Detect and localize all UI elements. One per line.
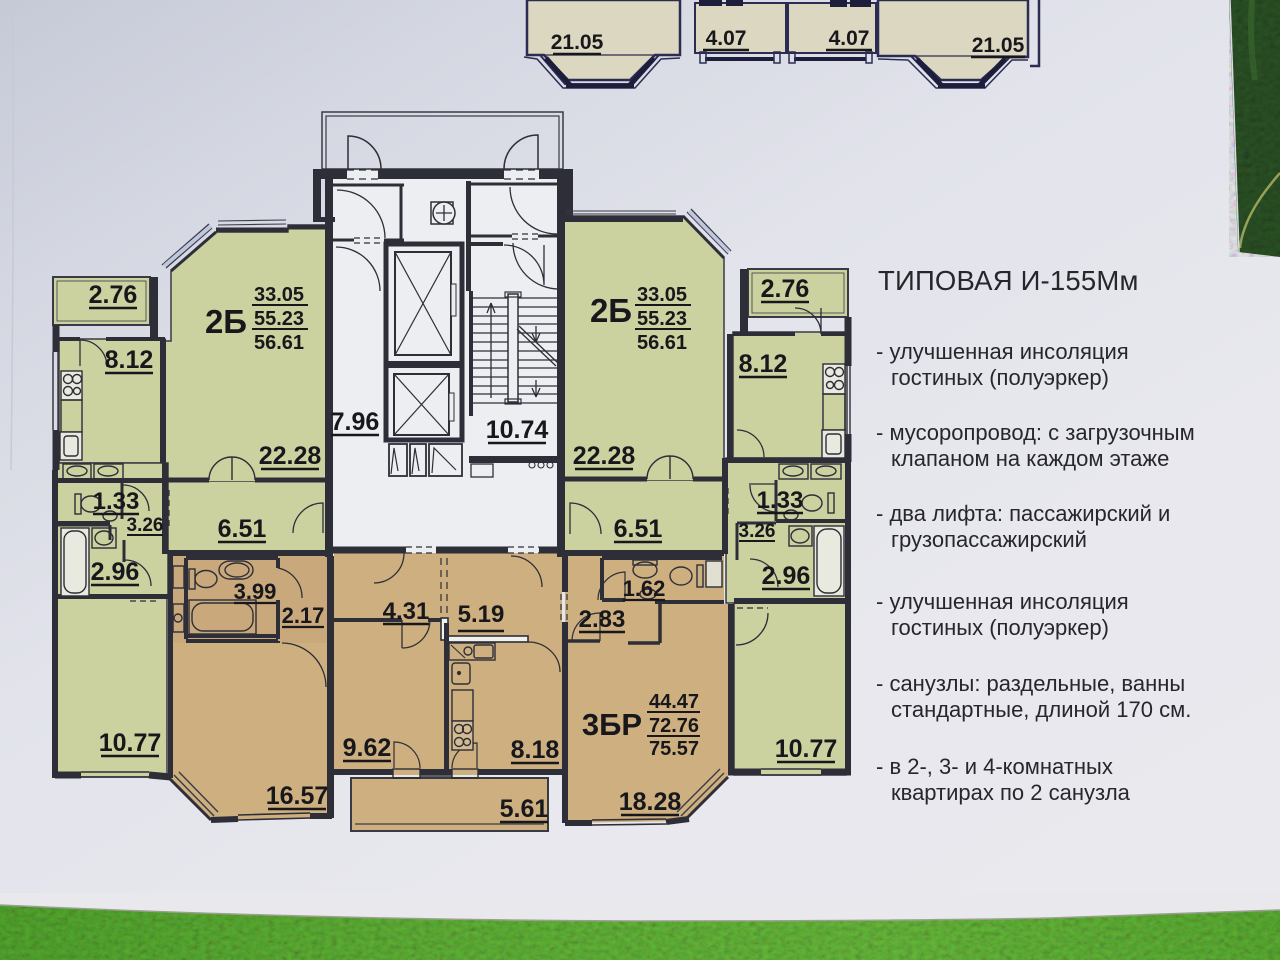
- svg-text:56.61: 56.61: [637, 332, 687, 354]
- svg-text:2.76: 2.76: [761, 275, 810, 303]
- svg-text:8.12: 8.12: [105, 346, 154, 374]
- svg-text:2.96: 2.96: [762, 562, 811, 590]
- svg-text:2Б: 2Б: [590, 292, 632, 329]
- svg-text:гостиных (полуэркер): гостиных (полуэркер): [891, 615, 1109, 640]
- svg-text:10.77: 10.77: [99, 729, 162, 757]
- svg-text:6.51: 6.51: [614, 515, 663, 543]
- svg-text:- два лифта: пассажирский и: - два лифта: пассажирский и: [876, 501, 1170, 526]
- svg-text:3БР: 3БР: [582, 707, 642, 742]
- svg-text:3.26: 3.26: [739, 521, 776, 542]
- svg-text:2.76: 2.76: [89, 281, 138, 309]
- svg-text:1.33: 1.33: [93, 488, 140, 515]
- svg-text:22.28: 22.28: [573, 442, 636, 470]
- svg-text:- мусоропровод: с загрузочным: - мусоропровод: с загрузочным: [876, 420, 1195, 445]
- svg-text:- санузлы: раздельные, ванны: - санузлы: раздельные, ванны: [876, 671, 1185, 696]
- svg-text:9.62: 9.62: [343, 734, 392, 762]
- svg-text:33.05: 33.05: [637, 284, 687, 306]
- svg-text:6.51: 6.51: [218, 515, 267, 543]
- svg-text:- улучшенная инсоляция: - улучшенная инсоляция: [876, 339, 1129, 364]
- svg-text:4.07: 4.07: [706, 27, 747, 50]
- svg-text:75.57: 75.57: [649, 738, 699, 760]
- svg-text:стандартные, длиной 170 см.: стандартные, длиной 170 см.: [891, 697, 1191, 722]
- svg-text:16.57: 16.57: [266, 782, 329, 810]
- svg-text:5.19: 5.19: [458, 601, 505, 628]
- svg-text:56.61: 56.61: [254, 332, 304, 354]
- svg-text:2.83: 2.83: [579, 606, 626, 633]
- svg-text:44.47: 44.47: [649, 691, 699, 713]
- svg-text:18.28: 18.28: [619, 788, 682, 816]
- svg-text:гостиных (полуэркер): гостиных (полуэркер): [891, 365, 1109, 390]
- svg-text:клапаном на каждом этаже: клапаном на каждом этаже: [891, 446, 1169, 471]
- svg-text:10.74: 10.74: [486, 416, 549, 444]
- svg-text:21.05: 21.05: [972, 34, 1025, 57]
- svg-text:2.96: 2.96: [91, 558, 140, 586]
- svg-text:- улучшенная инсоляция: - улучшенная инсоляция: [876, 589, 1129, 614]
- svg-text:55.23: 55.23: [637, 308, 687, 330]
- svg-text:21.05: 21.05: [551, 31, 604, 54]
- svg-text:33.05: 33.05: [254, 284, 304, 306]
- svg-text:квартирах по 2 санузла: квартирах по 2 санузла: [891, 780, 1131, 805]
- svg-text:1.33: 1.33: [757, 487, 804, 514]
- svg-text:грузопассажирский: грузопассажирский: [891, 527, 1087, 552]
- svg-text:4.07: 4.07: [829, 27, 870, 50]
- svg-text:8.12: 8.12: [739, 350, 788, 378]
- svg-text:55.23: 55.23: [254, 308, 304, 330]
- svg-text:1.62: 1.62: [623, 576, 666, 601]
- svg-text:ТИПОВАЯ И-155Мм: ТИПОВАЯ И-155Мм: [878, 265, 1139, 296]
- svg-text:22.28: 22.28: [259, 442, 322, 470]
- svg-text:- в 2-, 3- и 4-комнатных: - в 2-, 3- и 4-комнатных: [876, 754, 1113, 779]
- svg-text:10.77: 10.77: [775, 735, 838, 763]
- svg-text:2Б: 2Б: [205, 303, 247, 340]
- svg-text:3.99: 3.99: [234, 579, 277, 604]
- svg-text:2.17: 2.17: [282, 603, 325, 628]
- svg-text:4.31: 4.31: [383, 598, 430, 625]
- svg-text:3.26: 3.26: [127, 515, 164, 536]
- svg-text:5.61: 5.61: [500, 795, 549, 823]
- svg-text:8.18: 8.18: [511, 736, 560, 764]
- svg-text:72.76: 72.76: [649, 715, 699, 737]
- svg-text:7.96: 7.96: [331, 408, 380, 436]
